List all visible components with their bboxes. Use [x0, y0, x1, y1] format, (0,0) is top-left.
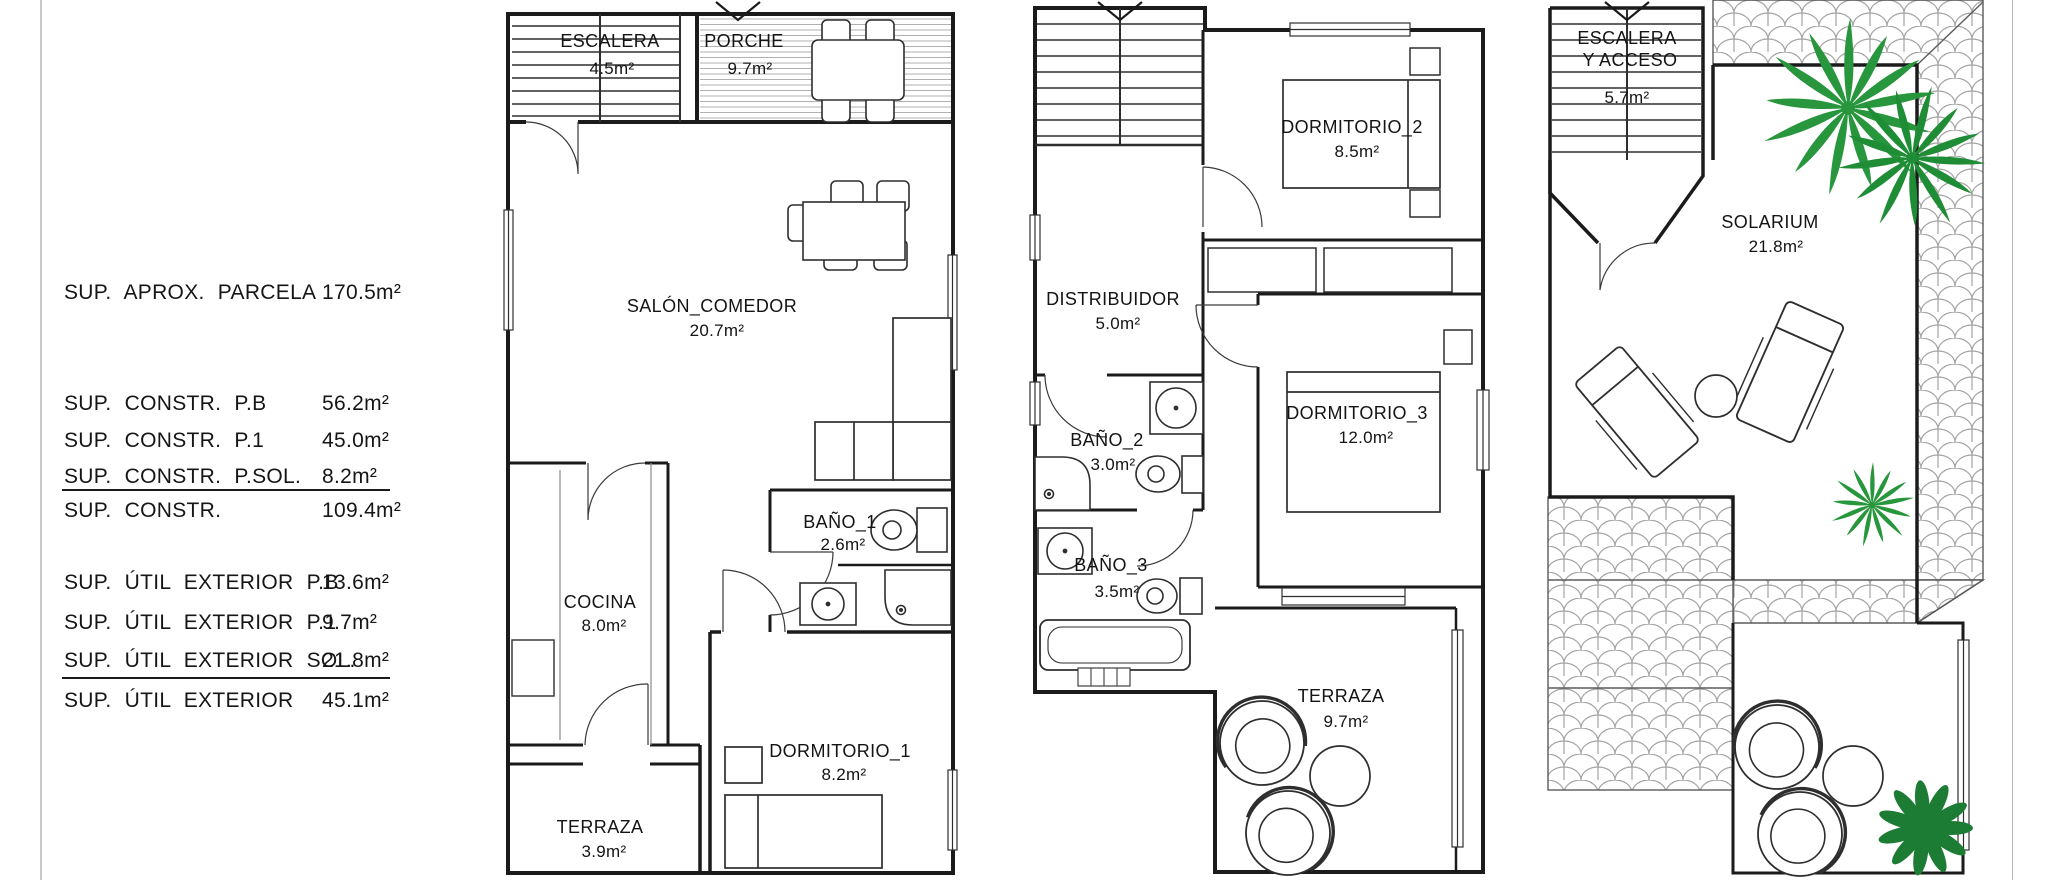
bathroom3-fixtures	[1038, 528, 1202, 686]
room-area-label: 5.0m²	[1096, 314, 1141, 333]
door-arc	[588, 463, 645, 520]
room-area-label: 5.7m²	[1605, 88, 1650, 107]
floor-plans-drawing: ESCALERA 4.5m² PORCHE 9.7m² SALÓN_COMEDO…	[0, 0, 2048, 880]
room-name-label: TERRAZA	[1298, 686, 1385, 706]
sun-lounger	[1729, 297, 1852, 446]
round-table	[1823, 746, 1883, 806]
room-area-label: 20.7m²	[690, 321, 745, 340]
room-area-label: 4.5m²	[590, 59, 635, 78]
room-area-label: 2.6m²	[821, 535, 866, 554]
room-name-label: BAÑO_2	[1070, 429, 1143, 451]
room-area-label: 21.8m²	[1749, 237, 1804, 256]
room-name-label: COCINA	[564, 592, 636, 612]
room-name-label: DORMITORIO_1	[769, 741, 911, 762]
shower	[885, 570, 951, 625]
room-area-label: 9.7m²	[1324, 712, 1369, 731]
room-area-label: 9.7m²	[728, 59, 773, 78]
kitchen-walls	[508, 463, 700, 764]
room-area-label: 8.2m²	[822, 765, 867, 784]
room-name-label: BAÑO_3	[1074, 554, 1147, 576]
kitchen-appliance	[512, 640, 554, 696]
door-arc	[585, 684, 648, 745]
plan-ground-floor: ESCALERA 4.5m² PORCHE 9.7m² SALÓN_COMEDO…	[504, 2, 957, 873]
sofa	[815, 318, 951, 480]
room-area-label: 8.5m²	[1335, 142, 1380, 161]
room-name-label: DORMITORIO_3	[1286, 403, 1428, 424]
room-area-label: 3.0m²	[1091, 455, 1136, 474]
door-arc	[723, 570, 785, 632]
room-area-label: 3.5m²	[1095, 582, 1140, 601]
room-name-label: DISTRIBUIDOR	[1046, 289, 1180, 309]
room-name-label: SOLARIUM	[1721, 212, 1818, 232]
staircase	[1035, 8, 1203, 145]
room-area-label: 8.0m²	[582, 616, 627, 635]
room-name-label: BAÑO_1	[803, 511, 876, 533]
salon-dining-set	[788, 181, 909, 270]
round-chair	[1726, 694, 1828, 796]
room-name-label: PORCHE	[704, 31, 783, 51]
room-name-label: TERRAZA	[557, 817, 644, 837]
door-arc	[1600, 243, 1655, 290]
room-name-label: ESCALERA	[560, 31, 659, 51]
round-table	[1695, 375, 1737, 417]
toilet	[871, 508, 947, 552]
plan-solarium: ESCALERA Y ACCESO 5.7m² SOLARIUM 21.8m²	[1548, 0, 2000, 880]
room-area-label: 12.0m²	[1339, 428, 1394, 447]
palm-plant	[1831, 462, 1914, 547]
floorplan-sheet: SUP. APROX. PARCELA170.5m² SUP. CONSTR. …	[0, 0, 2048, 880]
round-table	[1310, 746, 1370, 806]
room-name-label: ESCALERA	[1577, 28, 1676, 48]
window	[1958, 640, 1969, 850]
room-name-label: Y ACCESO	[1583, 50, 1678, 70]
room-name-label: DORMITORIO_2	[1281, 117, 1423, 138]
door-arc	[526, 122, 578, 174]
plan-first-floor: DORMITORIO_2 8.5m² DISTRIBUIDOR 5.0m² BA…	[1030, 2, 1489, 880]
room-name-label: SALÓN_COMEDOR	[627, 295, 797, 317]
sun-lounger	[1569, 341, 1705, 484]
closet	[1208, 248, 1452, 292]
sink	[800, 583, 856, 625]
room-area-label: 3.9m²	[582, 842, 627, 861]
